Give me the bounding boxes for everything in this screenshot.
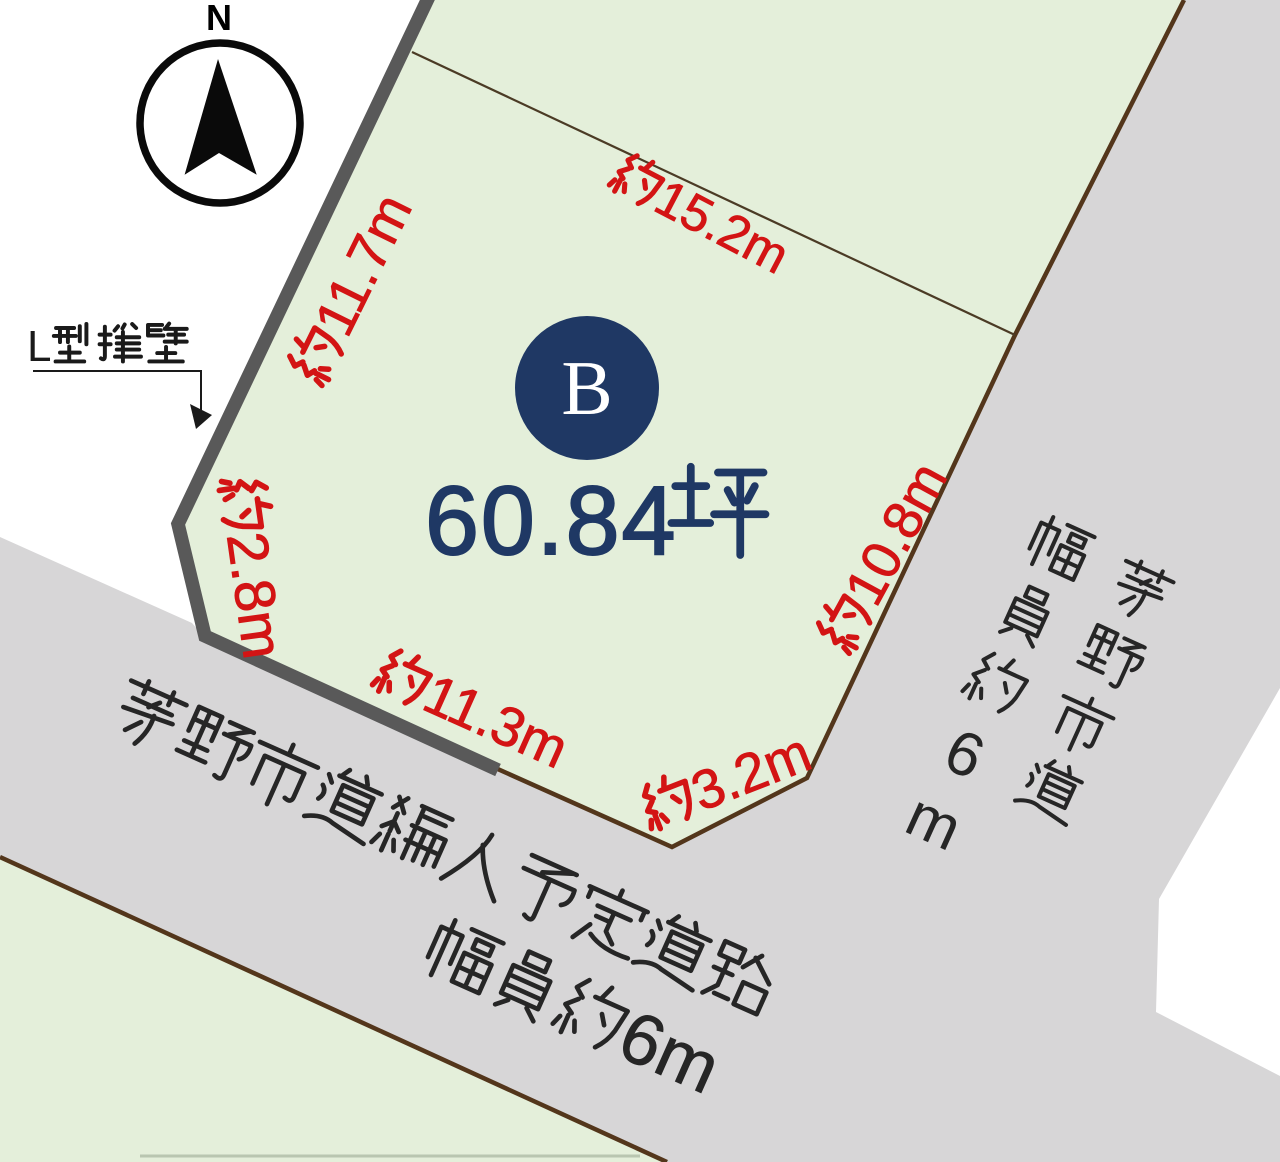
svg-text:L: L (27, 322, 51, 371)
svg-text:B: B (561, 345, 612, 431)
svg-text:60.84: 60.84 (425, 466, 677, 575)
svg-text:N: N (206, 0, 232, 38)
